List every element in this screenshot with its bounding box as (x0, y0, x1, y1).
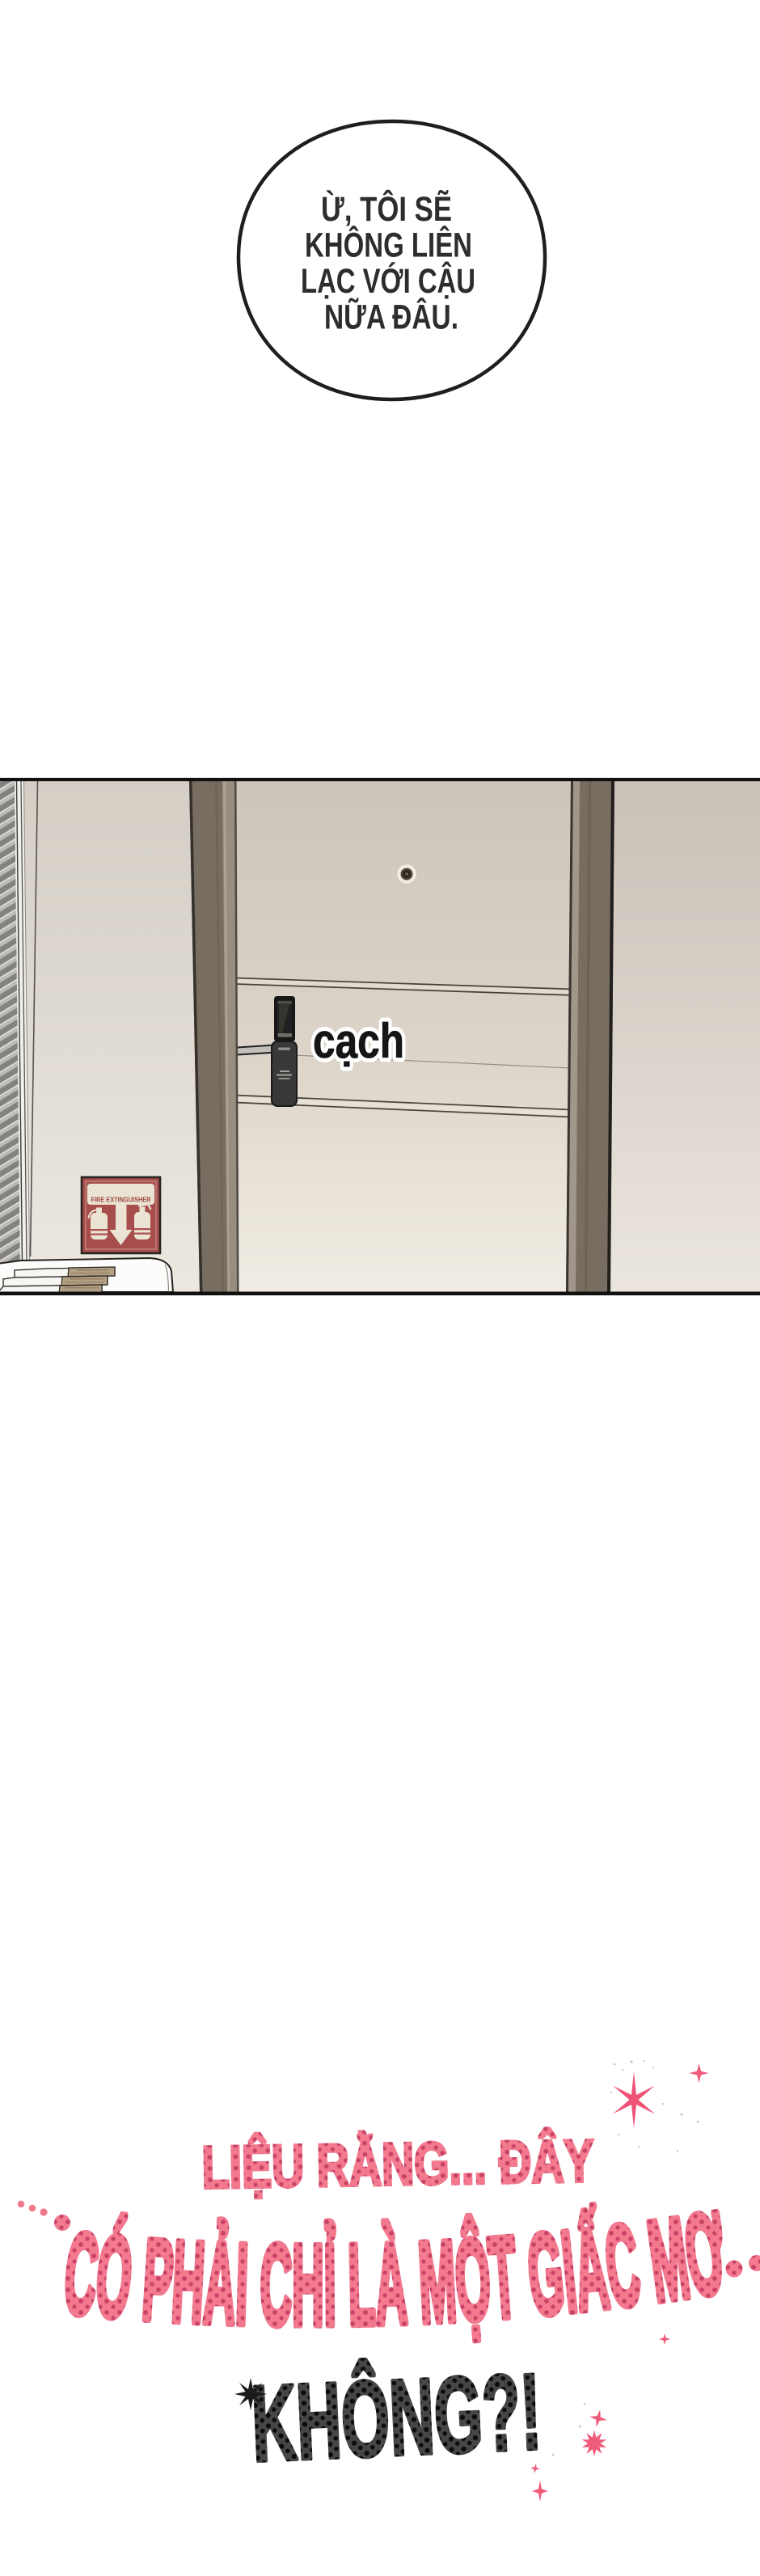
svg-text:LIỆU RẰNG... ĐÂY: LIỆU RẰNG... ĐÂY (201, 2127, 594, 2201)
svg-text:NỮA ĐÂU.: NỮA ĐÂU. (324, 298, 458, 337)
svg-text:KHÔNG?!: KHÔNG?! (249, 2351, 543, 2484)
svg-text:Ừ, TÔI SẼ: Ừ, TÔI SẼ (321, 189, 452, 229)
svg-text:FIRE EXTINGUISHER: FIRE EXTINGUISHER (91, 1197, 151, 1204)
svg-text:LẠC VỚI CẬU: LẠC VỚI CẬU (301, 261, 475, 301)
svg-text:cạch: cạch (313, 1014, 404, 1068)
svg-text:KHÔNG LIÊN: KHÔNG LIÊN (305, 226, 472, 265)
